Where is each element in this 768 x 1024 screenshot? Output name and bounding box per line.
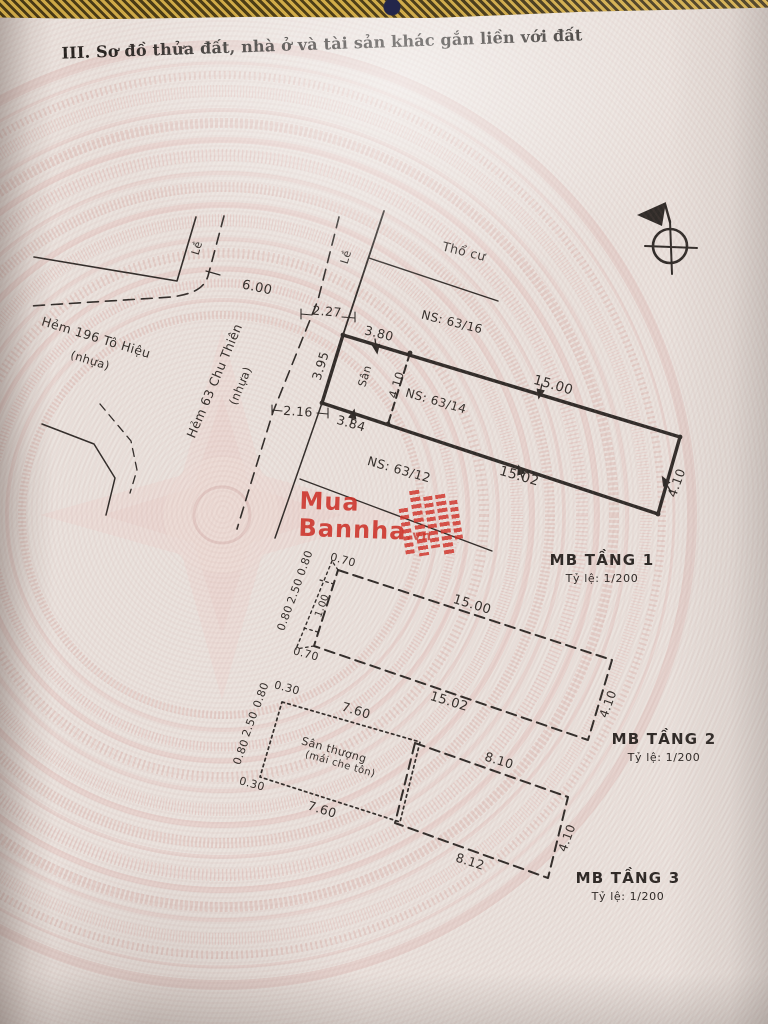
floor3-name: MB TẦNG 3 [563,869,693,887]
caption-floor2: MB TẦNG 2 Tỷ lệ: 1/200 [599,730,729,764]
north-arrow-icon [637,202,697,274]
floor2-name: MB TẦNG 2 [599,730,729,748]
caption-floor3: MB TẦNG 3 Tỷ lệ: 1/200 [563,869,693,903]
floor2-scale: Tỷ lệ: 1/200 [599,751,729,764]
document-page: III. Sơ đồ thửa đất, nhà ở và tài sản kh… [0,0,768,1024]
floor3-scale: Tỷ lệ: 1/200 [563,890,693,903]
caption-floor1: MB TẦNG 1 Tỷ lệ: 1/200 [537,551,667,585]
building-blocks-icon [396,480,469,563]
dim: 2.16 [283,405,313,420]
floor1-name: MB TẦNG 1 [537,551,667,569]
floor1-scale: Tỷ lệ: 1/200 [537,572,667,585]
dim-curb-width: 2.27 [312,304,342,319]
